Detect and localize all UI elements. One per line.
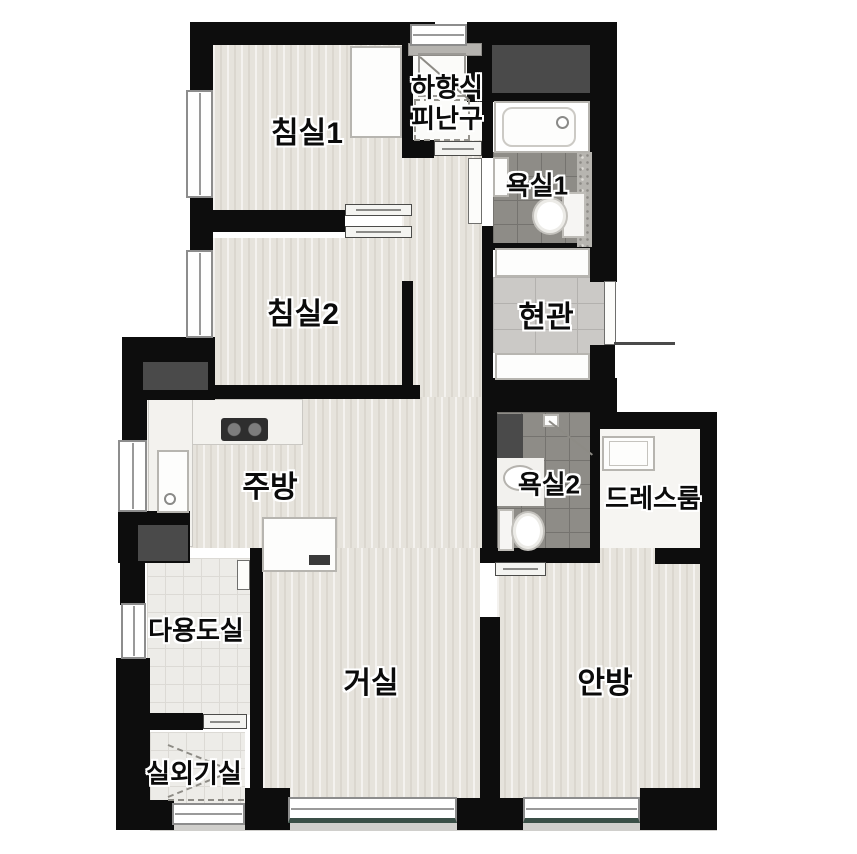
wall	[590, 412, 717, 429]
room-label-kitchen: 주방	[242, 462, 297, 506]
room-label-bathroom1: 욕실1	[506, 166, 568, 203]
sliding-door-bedroom2	[345, 226, 412, 238]
wall	[482, 100, 493, 158]
window-utility	[121, 603, 146, 659]
door-outdoor-unit-room	[203, 714, 247, 729]
window-bedroom1	[186, 90, 213, 198]
wardrobe-bedroom1	[350, 46, 402, 138]
door-utility-room	[237, 560, 250, 590]
room-label-utility: 다용도실	[148, 611, 244, 648]
room-label-living: 거실	[343, 658, 398, 702]
wall	[116, 800, 174, 830]
wall	[590, 102, 617, 282]
toilet-bathroom2	[511, 511, 545, 551]
entrance-closet-bottom	[495, 353, 590, 380]
room-label-master: 안방	[577, 658, 632, 702]
wall	[245, 788, 290, 830]
window-bedroom2	[186, 250, 213, 338]
dressroom-vanity-basin	[609, 441, 648, 466]
wall	[120, 563, 145, 605]
door-bathroom1	[468, 158, 482, 224]
wall	[457, 798, 523, 830]
window-outdoor-unit	[172, 803, 245, 825]
sliding-door-bedroom1	[345, 204, 412, 216]
sliding-door-master-bedroom	[495, 562, 546, 576]
duct-shaft	[143, 362, 208, 390]
wall	[190, 198, 213, 252]
wall	[145, 713, 203, 730]
duct-shaft	[138, 525, 188, 561]
room-label-dressroom: 드레스룸	[605, 479, 701, 516]
window-living-room	[288, 797, 457, 823]
kitchen-island-hob	[309, 555, 330, 565]
duct-shaft	[492, 45, 590, 93]
room-label-entrance: 현관	[518, 292, 573, 336]
wall	[640, 788, 717, 830]
wall	[700, 412, 717, 830]
kitchen-cooktop	[221, 418, 268, 441]
entrance-door	[604, 281, 616, 345]
louver-line	[168, 799, 244, 801]
duct-shaft	[497, 414, 523, 460]
bathtub-drain	[556, 116, 569, 129]
wall	[122, 397, 147, 442]
door-evacuation-room	[434, 141, 482, 156]
wall	[482, 412, 497, 548]
wall	[190, 385, 420, 399]
entrance-door-swing-line	[614, 342, 675, 345]
wall	[213, 210, 345, 232]
room-label-bathroom2: 욕실2	[518, 465, 580, 502]
window-evacuation	[410, 24, 467, 46]
room-label-evacuation-line2: 피난구	[411, 99, 483, 136]
wall	[590, 428, 600, 548]
wall	[402, 281, 413, 388]
room-label-bedroom2: 침실2	[267, 289, 339, 333]
wall	[402, 140, 434, 158]
toilet-bathroom1	[532, 197, 568, 235]
apartment-floor-plan: 침실1 침실2 하향식 피난구 욕실1 현관 주방 욕실2 드레스룸 다용도실 …	[0, 0, 857, 854]
window-master-bedroom	[523, 797, 640, 823]
wall	[250, 548, 263, 804]
wall	[482, 226, 493, 378]
wall	[190, 22, 435, 45]
room-label-bedroom1: 침실1	[271, 108, 343, 152]
wall	[480, 617, 500, 804]
window-kitchen	[118, 440, 147, 512]
entrance-closet-top	[495, 248, 590, 277]
kitchen-faucet	[164, 493, 176, 505]
wall	[482, 378, 617, 412]
wall	[655, 548, 717, 564]
room-label-outdoor-unit: 실외기실	[146, 754, 242, 791]
